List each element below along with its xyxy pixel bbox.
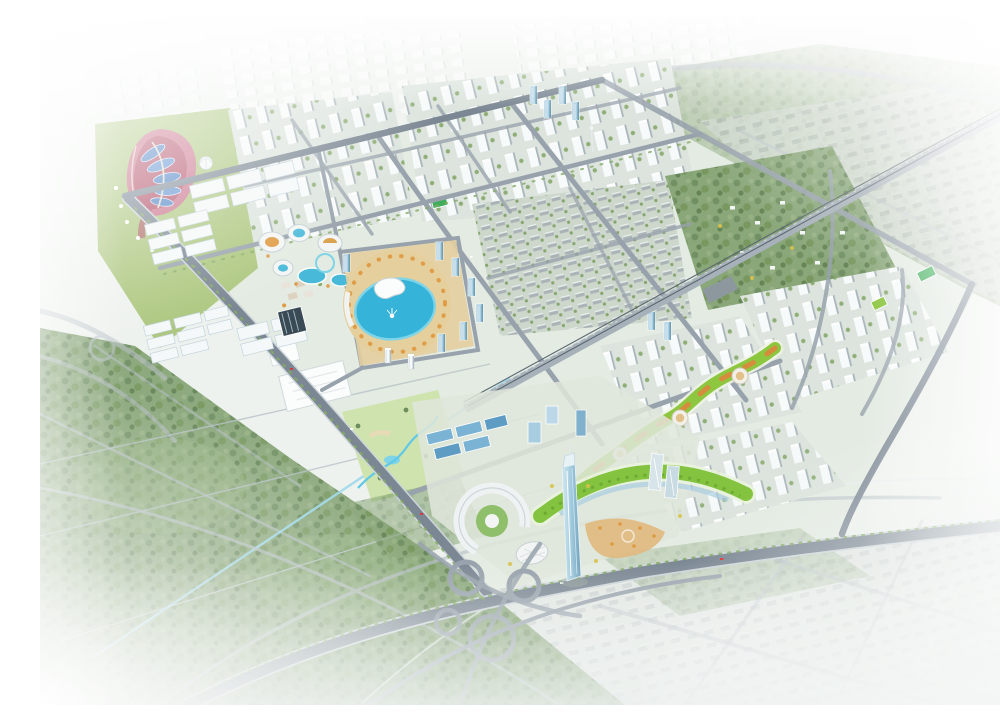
haze-vignette — [40, 16, 1000, 705]
aerial-masterplan-render — [40, 16, 1000, 705]
